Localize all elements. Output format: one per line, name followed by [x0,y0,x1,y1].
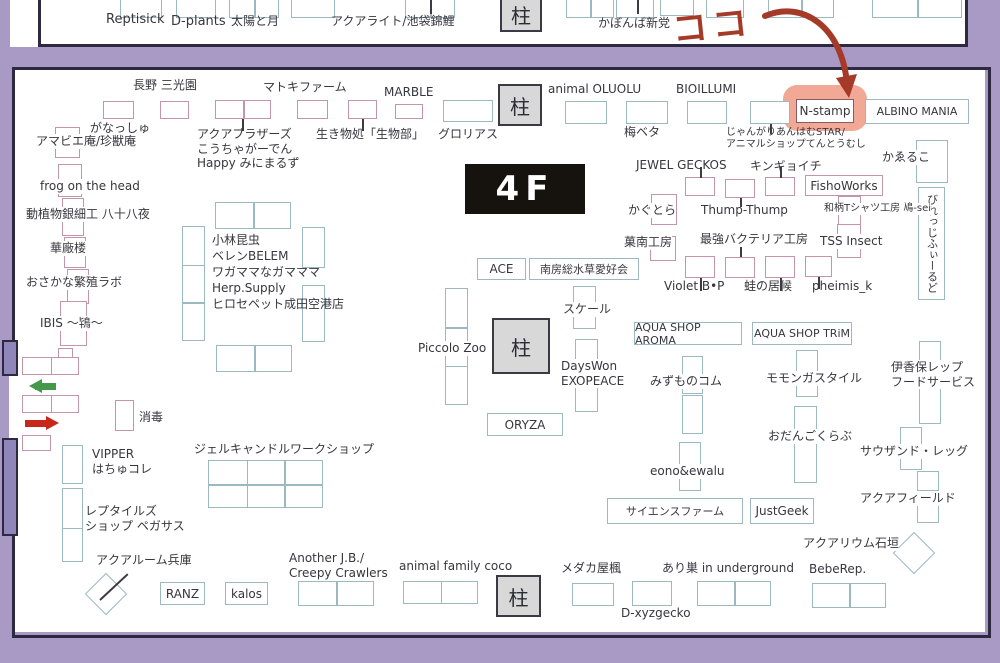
booth-label: レプタイルズ ショップ ペガサス [85,504,185,533]
booth-label: D-plants [171,14,226,30]
booth-label: アマビエ庵/珍獣庵 [36,134,136,149]
booth-label: IBIS ～鴇～ [40,316,103,331]
booth-label: animal family coco [399,559,512,574]
booth-box-divider [336,582,338,605]
booth-box [812,583,886,608]
exit-arrow-bar [35,383,56,390]
booth-box-divider [734,582,736,605]
booth-box [443,100,493,122]
booth-label: アクアライト/池袋錦鯉 [331,14,454,29]
booth-box [725,179,755,198]
booth-label: Herp.Supply [212,281,286,296]
booth-label: BebeRep. [809,562,866,577]
booth-box-divider [51,396,53,412]
booth-box [22,395,79,413]
booth-box [632,581,672,606]
booth-box [565,101,607,124]
booth-label: グロリアス [438,127,498,142]
annotation-arrow-icon [650,0,900,140]
booth-box [216,345,292,372]
strip-border-right [965,0,968,44]
booth-box-label: kalos [226,583,267,604]
booth-box [160,101,189,119]
booth-box: サイエンスファーム [607,498,743,524]
booth-box [682,395,703,434]
booth-box [685,177,715,196]
booth-label: 華廠楼 [50,241,86,256]
booth-box: RANZ [160,582,205,605]
booth-label: 伊香保レップ フードサービス [891,360,975,389]
booth-label: おさかな繁殖ラボ [26,275,122,290]
booth-box-divider [446,327,467,329]
entry-arrow-bar [25,420,46,427]
booth-box: JustGeek [750,498,814,524]
booth-box [115,400,134,431]
booth-label: おだんごくらぶ [768,429,852,444]
pillar: 柱 [498,84,542,126]
booth-label: モモンガスタイル [766,371,862,386]
booth-label: 生き物処「生物部」 [316,127,424,142]
booth-label: 菓南工房 [624,235,672,250]
booth-box [917,471,939,491]
booth-label: アクアブラザーズ こうちゃがーでん Happy みにまるず [197,127,300,171]
booth-label: TSS Insect [820,234,882,249]
entry-arrow-head [46,416,66,430]
booth-box [182,226,205,341]
booth-box [805,256,832,277]
booth-label: メダカ屋楓 [561,561,621,576]
booth-box [765,177,795,196]
pillar: 柱 [496,575,541,617]
booth-label: Piccolo Zoo [418,341,486,356]
booth-box [215,100,271,119]
booth-box-divider [243,101,245,118]
booth-box: ACE [477,258,526,280]
booth-box-label: FishoWorks [806,176,882,195]
booth-label: マトキファーム [263,80,347,95]
connector-tick [637,0,639,14]
booth-label: アクアフィールド [860,491,956,506]
booth-box [208,460,323,508]
booth-label: Reptisick [106,12,164,28]
booth-box [22,435,51,451]
booth-label: 太陽と月 [231,14,279,29]
booth-label: みずものコム [650,374,722,389]
pillar: 柱 [492,318,550,374]
booth-box-divider [590,0,592,17]
floor-sign: 4F [465,164,585,214]
exit-arrow-icon [22,379,56,394]
booth-box-divider [849,584,851,607]
booth-label: アクアルーム兵庫 [96,553,192,568]
booth-box [395,104,423,119]
booth-box [302,227,325,268]
booth-label: MARBLE [384,85,433,100]
booth-box-divider [917,0,919,17]
booth-label: 最強バクテリア工房 [700,232,808,247]
booth-box-divider [253,203,255,228]
booth-box [215,202,291,229]
booth-box [103,101,134,119]
booth-label: D-xyzgecko [621,606,691,621]
booth-box [298,581,374,606]
booth-box-label: ACE [478,259,525,279]
booth-label: ワガママなガマママ [212,265,320,280]
booth-box [62,445,83,484]
booth-label: 蛙の居候 [744,279,792,294]
booth-label: かゑるこ [882,150,930,165]
booth-label: animal OLUOLU [548,82,641,97]
booth-box: ORYZA [487,413,563,436]
booth-label: Another J.B./ Creepy Crawlers [289,551,388,580]
booth-box [572,583,614,606]
booth-label: Violet B•P [664,279,724,294]
floor-map-page: ReptisickD-plants太陽と月アクアライト/池袋錦鯉かぼんば新党柱 … [0,0,1000,663]
booth-box-label: AQUA SHOP TRiM [753,323,851,344]
booth-box [685,256,715,278]
booth-box-divider [183,265,204,267]
wall-segment [2,438,18,536]
entrance-gap [9,374,18,438]
entry-arrow-icon [25,416,59,431]
booth-label: 動植物銀細工 八十八夜 [26,207,150,222]
booth-label: ヒロセペット成田空港店 [212,297,344,312]
booth-box [348,100,377,119]
booth-box [62,528,83,562]
booth-label: あり巣 in underground [662,561,794,576]
booth-box [765,256,795,278]
booth-label: Thump-Thump [701,203,788,218]
booth-box [917,504,939,523]
booth-box-label: ORYZA [488,414,562,435]
booth-label: ジェルキャンドルワークショップ [194,442,374,457]
booth-box [697,581,771,606]
booth-box: kalos [225,582,268,605]
booth-box [291,0,335,18]
wall-segment [2,340,18,376]
booth-label: アクアリウム石垣 [803,536,899,551]
booth-box: AQUA SHOP TRiM [752,322,852,345]
connector-tick [740,247,742,257]
booth-box [403,581,478,604]
booth-box: 南房総水草愛好会 [529,258,639,280]
booth-box-divider [441,582,443,603]
booth-box [297,100,328,119]
booth-label: DaysWon EXOPEACE [561,359,624,388]
booth-label: frog on the head [40,179,140,194]
booth-box-label: RANZ [161,583,204,604]
booth-box [725,257,755,278]
connector-tick [430,0,432,14]
strip-border-left [38,0,41,47]
booth-box-label: AQUA SHOP AROMA [635,323,741,344]
booth-box [302,285,325,342]
booth-label: かぐとら [628,203,676,218]
booth-box-divider [446,366,467,368]
booth-label: 長野 三光園 [133,78,197,93]
booth-label: pheimis_k [812,279,872,294]
booth-box: AQUA SHOP AROMA [634,322,742,345]
pillar: 柱 [500,0,542,32]
booth-box-label: 南房総水草愛好会 [530,259,638,279]
booth-box [794,406,817,483]
booth-label: VIPPER はちゅコレ [92,447,152,476]
booth-label: スケール [563,302,611,317]
booth-label: 消毒 [139,410,163,425]
booth-label: 和柄Tシャツ工房 鳰-sei [824,203,931,215]
booth-label: ベレンBELEM [212,249,288,264]
booth-box-divider [183,302,204,304]
booth-label: キンギョイチ [750,159,822,174]
booth-box-divider [254,346,256,371]
booth-box-label: JustGeek [751,499,813,523]
booth-box-divider [209,484,322,486]
booth-box [22,357,79,375]
booth-label: 小林昆虫 [212,233,260,248]
booth-label: JEWEL GECKOS [636,158,727,173]
booth-box-label: サイエンスファーム [608,499,742,523]
booth-box [62,488,83,529]
booth-box-divider [51,358,53,374]
booth-box: FishoWorks [805,175,883,196]
booth-label: サウザンド・レッグ [860,444,968,459]
booth-label: eono&ewalu [650,464,725,479]
